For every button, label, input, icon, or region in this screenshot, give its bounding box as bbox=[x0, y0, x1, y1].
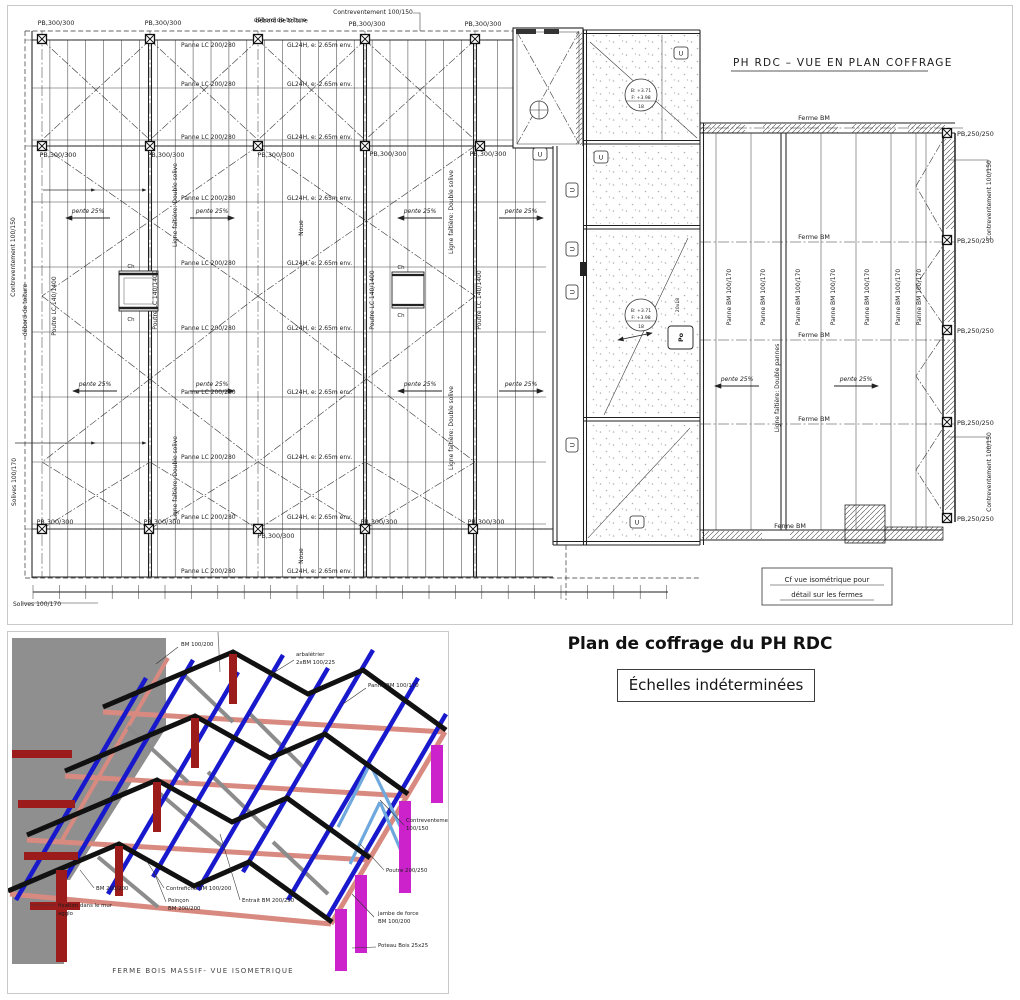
pb250-label: PB,250/250 bbox=[957, 515, 994, 523]
poutre-lc-label: Poutre LC 140/1400 bbox=[51, 276, 58, 336]
pente-labels: pente 25%pente 25%pente 25%pente 25%pent… bbox=[66, 208, 878, 391]
pb300-label: PB,300/300 bbox=[148, 151, 185, 159]
pb250-label: PB,250/250 bbox=[957, 327, 994, 335]
drawing-primitive: U bbox=[569, 442, 577, 447]
panne-bm-label: Panne BM 100/170 bbox=[830, 269, 837, 326]
panne-bm-label: Panne BM 100/170 bbox=[895, 269, 902, 326]
ch-label: Ch bbox=[397, 265, 404, 271]
callout-poincon-size: BM 200/200 bbox=[168, 906, 201, 912]
pb300-label: PB,300/300 bbox=[349, 20, 386, 28]
drawing-primitive bbox=[845, 505, 885, 543]
ch-label: Ch bbox=[127, 317, 134, 323]
note-line1: Cf vue isométrique pour bbox=[785, 576, 870, 584]
callout-jambe-size: BM 100/200 bbox=[378, 919, 411, 925]
drawing-primitive bbox=[42, 462, 475, 529]
contreventement-label: Contreventement 100/150 bbox=[986, 160, 993, 240]
pb300-label: PB,300/300 bbox=[40, 151, 77, 159]
gl24h-label: GL24H, e: 2.65m env. bbox=[287, 389, 352, 396]
panne-lc-label: Panne LC 200/280 bbox=[181, 454, 236, 461]
top-right-room bbox=[513, 28, 583, 148]
u-marker: U bbox=[594, 151, 608, 163]
noue-label: Noue bbox=[298, 548, 305, 564]
drawing-primitive bbox=[12, 750, 72, 758]
gl24h-label: GL24H, e: 2.65m env. bbox=[287, 260, 352, 267]
drawing-primitive: U bbox=[569, 246, 577, 251]
pente-label: pente 25% bbox=[195, 208, 229, 215]
drawing-primitive bbox=[413, 13, 420, 31]
drawing-primitive bbox=[944, 430, 955, 510]
pente-label: pente 25% bbox=[78, 381, 112, 388]
po-label: Po bbox=[677, 332, 685, 342]
faitiere-label: Ligne faîtière: Double solive bbox=[172, 163, 179, 247]
panne-row-labels: Panne LC 200/280GL24H, e: 2.65m env.Pann… bbox=[181, 42, 352, 575]
callout-bm-100-200: BM 100/200 bbox=[181, 642, 214, 648]
pente-label: pente 25% bbox=[504, 208, 538, 215]
drawing-primitive: U bbox=[569, 187, 577, 192]
level-b-label: B: +3.71 bbox=[631, 88, 651, 94]
gl24h-label: GL24H, e: 2.65m env. bbox=[287, 325, 352, 332]
ferme-bm-label: Ferme BM bbox=[798, 114, 830, 122]
faitiere-label: Ligne faîtière: Double solive bbox=[448, 170, 455, 254]
gl24h-label: GL24H, e: 2.65m env. bbox=[287, 568, 352, 575]
panne-bm-label: Panne BM 100/170 bbox=[916, 269, 923, 326]
drawing-primitive: U bbox=[538, 151, 543, 159]
po-marker: Po bbox=[668, 326, 693, 349]
plan-title: PH RDC – VUE EN PLAN COFFRAGE bbox=[733, 57, 953, 69]
panne-lc-label: Panne LC 200/280 bbox=[181, 389, 236, 396]
drawing-primitive bbox=[431, 745, 443, 803]
scale-note-box: Échelles indéterminées bbox=[617, 669, 815, 702]
level-f-label: F: +3.98 bbox=[631, 315, 650, 321]
callout-arbaletrier: arbalétrier bbox=[296, 651, 325, 658]
pb300-label: PB,300/300 bbox=[468, 518, 505, 526]
u-marker: U bbox=[566, 242, 578, 256]
note-line2: détail sur les fermes bbox=[791, 591, 863, 599]
note-box: Cf vue isométrique pour détail sur les f… bbox=[762, 568, 892, 605]
drawing-primitive bbox=[885, 527, 943, 540]
drawing-primitive bbox=[516, 29, 536, 34]
gl24h-label: GL24H, e: 2.65m env. bbox=[287, 81, 352, 88]
pente-label: pente 25% bbox=[195, 381, 229, 388]
drawing-primitive bbox=[944, 250, 955, 322]
callout-poutre: Poutre 200/250 bbox=[386, 868, 428, 874]
u-marker: U bbox=[566, 285, 578, 299]
ferme-bm-label: Ferme BM bbox=[798, 331, 830, 339]
poutre-lc-label: Poutre LC 140/1400 bbox=[476, 270, 483, 330]
pb250-label: PB,250/250 bbox=[957, 419, 994, 427]
faitiere-pannes-label: Ligne faîtière: Double pannes bbox=[774, 344, 781, 432]
drawing-primitive: U bbox=[679, 50, 684, 58]
pb300-label: PB,300/300 bbox=[470, 150, 507, 158]
drawing-primitive: U bbox=[599, 154, 604, 162]
drawing-primitive bbox=[576, 31, 582, 145]
panne-lc-label: Panne LC 200/280 bbox=[181, 195, 236, 202]
panne-lc-label: Panne LC 200/280 bbox=[181, 325, 236, 332]
drawing-primitive: U bbox=[635, 519, 640, 527]
u-marker: U bbox=[533, 148, 547, 160]
contreventement-label: Contreventement 100/150 bbox=[986, 432, 993, 512]
level-f-label: F: +3.98 bbox=[631, 95, 650, 101]
gl24h-label: GL24H, e: 2.65m env. bbox=[287, 454, 352, 461]
gl24h-label: GL24H, e: 2.65m env. bbox=[287, 514, 352, 521]
pb300-label: PB,300/300 bbox=[37, 518, 74, 526]
drawing-primitive bbox=[944, 139, 955, 229]
poutre-lc-label: Poutre LC 140/1400 bbox=[152, 270, 159, 330]
pb300-label: PB,300/300 bbox=[465, 20, 502, 28]
coffrage-plan-drawing: B: +3.71 F: +3.98 18 B: +3.71 F: +3.98 1… bbox=[0, 0, 1020, 628]
panne-lc-label: Panne LC 200/280 bbox=[181, 514, 236, 521]
chevetre-opening-2 bbox=[392, 272, 424, 308]
pb300-label: PB,300/300 bbox=[258, 151, 295, 159]
drawing-primitive: U bbox=[569, 289, 577, 294]
panne-lc-label: Panne LC 200/280 bbox=[181, 42, 236, 49]
pente-label: pente 25% bbox=[403, 381, 437, 388]
ferme-bm-label: Ferme BM bbox=[798, 233, 830, 241]
pb300-label: PB,300/300 bbox=[370, 150, 407, 158]
drawing-primitive bbox=[24, 852, 78, 860]
panne-bm-label: Panne BM 100/170 bbox=[795, 269, 802, 326]
u-marker: U bbox=[674, 47, 688, 59]
callout-fixation: fixation dans le mur bbox=[58, 903, 113, 909]
callout-contreventement: Contreventement bbox=[406, 818, 448, 824]
ch-label: Ch bbox=[127, 264, 134, 270]
pente-label: pente 25% bbox=[504, 381, 538, 388]
callout-poincon: Poinçon bbox=[168, 898, 189, 904]
faitiere-label: Ligne faîtière: Double solive bbox=[448, 386, 455, 470]
drawing-primitive bbox=[229, 654, 237, 704]
drawing-primitive bbox=[790, 531, 845, 539]
drawing-primitive bbox=[702, 531, 762, 539]
solives-label: Solives 100/170 bbox=[13, 601, 61, 608]
drawing-primitive bbox=[42, 40, 475, 140]
poutre-lc-label: Poutre LC 140/1400 bbox=[369, 270, 376, 330]
pb300-label: PB,300/300 bbox=[145, 19, 182, 27]
callout-fixation-2: agglo bbox=[58, 911, 73, 917]
drawing-primitive bbox=[355, 875, 367, 953]
stair-level-marker-2: B: +3.71 F: +3.98 18 bbox=[625, 299, 657, 331]
drawing-primitive bbox=[392, 272, 424, 308]
ch-label: Ch bbox=[397, 313, 404, 319]
panne-bm-label: Panne BM 100/170 bbox=[864, 269, 871, 326]
drawing-primitive bbox=[762, 568, 892, 605]
panne-lc-label: Panne LC 200/280 bbox=[181, 568, 236, 575]
pb250-label: PB,250/250 bbox=[957, 130, 994, 138]
debord-label-ghost: débord de toiture bbox=[255, 18, 308, 25]
ferme-bm-label: Ferme BM bbox=[798, 415, 830, 423]
callout-contrefiche: Contrefiche BM 100/200 bbox=[166, 886, 232, 892]
level-num-label: 18 bbox=[638, 324, 644, 330]
level-b-label: B: +3.71 bbox=[631, 308, 651, 314]
gl24h-label: GL24H, e: 2.65m env. bbox=[287, 195, 352, 202]
ferme-bm-label: Ferme BM bbox=[774, 522, 806, 530]
drawing-primitive bbox=[191, 718, 199, 768]
level-num-label: 18 bbox=[638, 104, 644, 110]
callout-arbaletrier-size: 2xBM 100/225 bbox=[296, 660, 335, 666]
pente-label: pente 25% bbox=[839, 376, 873, 383]
gl24h-label: GL24H, e: 2.65m env. bbox=[287, 134, 352, 141]
pb300-label: PB,300/300 bbox=[258, 532, 295, 540]
callout-bm-200-200: BM 200/200 bbox=[96, 886, 129, 892]
pente-label: pente 25% bbox=[720, 376, 754, 383]
drawing-primitive bbox=[42, 296, 475, 462]
callout-jambe: jambe de force bbox=[377, 911, 419, 917]
iso-view-drawing: BM 100/200 arbalétrier 2xBM 100/225 Pann… bbox=[8, 632, 448, 993]
callout-contreventement-size: 100/150 bbox=[406, 826, 429, 832]
drawing-primitive bbox=[18, 800, 75, 808]
panne-lc-label: Panne LC 200/280 bbox=[181, 81, 236, 88]
drawing-primitive bbox=[80, 870, 94, 888]
drawing-primitive bbox=[218, 632, 220, 672]
page-title: Plan de coffrage du PH RDC bbox=[545, 634, 855, 654]
drawing-primitive bbox=[513, 28, 583, 148]
drawing-primitive bbox=[153, 782, 161, 832]
panne-bm-label: Panne BM 100/170 bbox=[726, 269, 733, 326]
drawing-primitive bbox=[335, 909, 347, 971]
drawing-primitive bbox=[944, 340, 955, 414]
stair-steps-label: 20x18 bbox=[675, 298, 681, 312]
panne-bm-label: Panne BM 100/170 bbox=[760, 269, 767, 326]
callout-panne-bm: Panne BM 100/170 bbox=[368, 683, 419, 689]
u-marker: U bbox=[566, 438, 578, 452]
solives-label: Solives 100/170 bbox=[11, 458, 18, 506]
drawing-primitive bbox=[580, 262, 586, 276]
panne-lc-label: Panne LC 200/280 bbox=[181, 134, 236, 141]
drawing-primitive bbox=[399, 801, 411, 893]
panne-lc-label: Panne LC 200/280 bbox=[181, 260, 236, 267]
drawing-primitive bbox=[154, 872, 166, 902]
gl24h-label: GL24H, e: 2.65m env. bbox=[287, 42, 352, 49]
pente-label: pente 25% bbox=[71, 208, 105, 215]
pente-label: pente 25% bbox=[403, 208, 437, 215]
page: B: +3.71 F: +3.98 18 B: +3.71 F: +3.98 1… bbox=[0, 0, 1020, 1000]
contreventement-label: Contreventement 100/150 bbox=[333, 9, 413, 16]
u-marker: U bbox=[566, 183, 578, 197]
stair-level-marker-1: B: +3.71 F: +3.98 18 bbox=[625, 79, 657, 111]
debord-label: débord de toiture bbox=[22, 284, 29, 337]
callout-poteau: Poteau Bois 25x25 bbox=[378, 943, 428, 949]
drawing-primitive bbox=[243, 650, 373, 872]
u-marker: U bbox=[630, 516, 644, 528]
pb300-label: PB,300/300 bbox=[38, 19, 75, 27]
drawing-primitive bbox=[544, 29, 559, 34]
iso-caption: FERME BOIS MASSIF- VUE ISOMETRIQUE bbox=[112, 967, 294, 975]
pb300-label: PB,300/300 bbox=[361, 518, 398, 526]
faitiere-label: Ligne faîtière: Double solive bbox=[172, 436, 179, 520]
noue-label: Noue bbox=[298, 220, 305, 236]
contreventement-label: Contreventement 100/150 bbox=[10, 217, 17, 297]
callout-entrait: Entrait BM 200/250 bbox=[242, 898, 295, 904]
drawing-primitive bbox=[553, 146, 586, 545]
